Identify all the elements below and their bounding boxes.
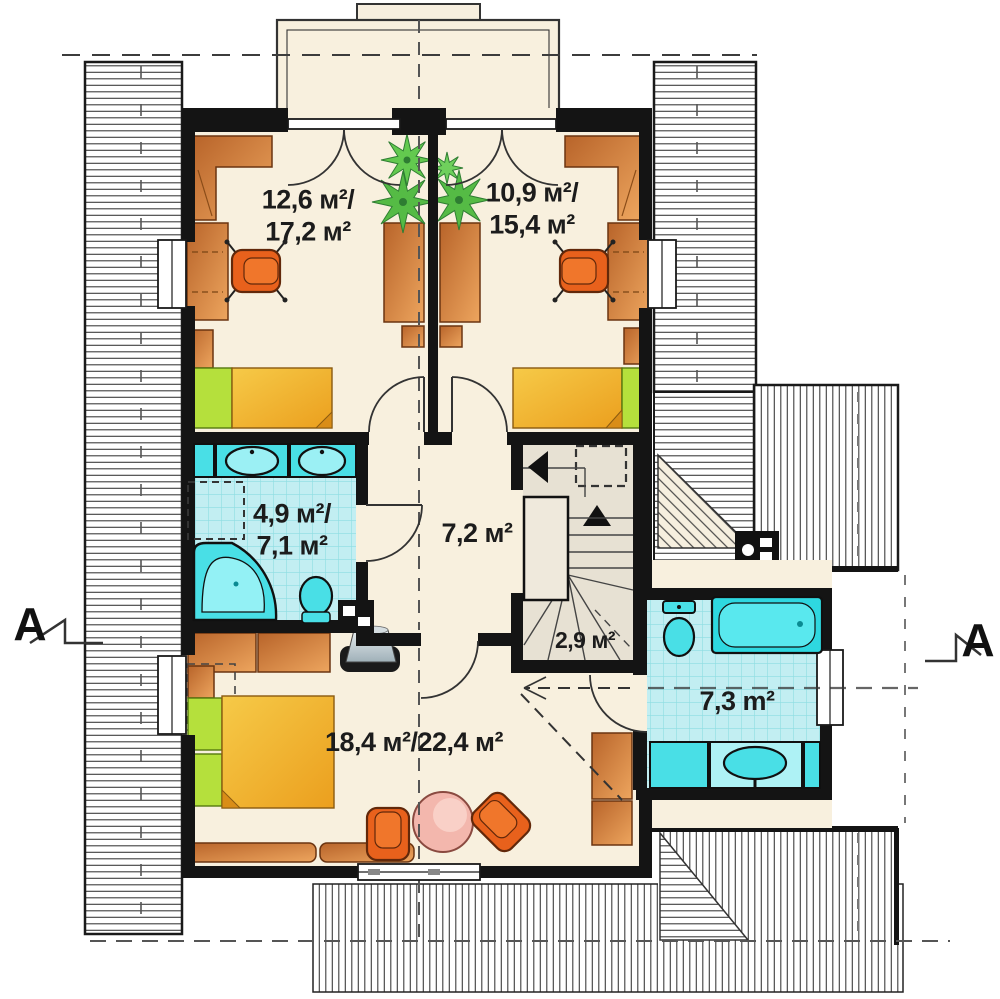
office-chair-icon	[553, 240, 616, 303]
room-area-label-bathroom-right: 7,3 m²	[699, 685, 774, 717]
window	[158, 240, 186, 308]
sofa-icon	[188, 843, 316, 862]
nightstand-icon	[188, 666, 214, 698]
wall-pier	[338, 600, 374, 633]
window	[158, 656, 186, 734]
room-area-label-hallway: 7,2 м²	[442, 517, 513, 549]
room-area-label-bedroom-top-left: 12,6 м²/ 17,2 м²	[262, 184, 355, 249]
roof-right	[654, 62, 756, 392]
table-icon	[413, 792, 473, 852]
bed-icon	[513, 368, 640, 428]
bed-icon	[190, 368, 332, 428]
desk-icon	[440, 223, 480, 322]
toilet-icon	[663, 601, 695, 656]
room-area-label-bathroom-left: 4,9 м²/ 7,1 м²	[253, 498, 331, 563]
stool-icon	[440, 326, 462, 347]
stool-icon	[402, 326, 424, 347]
room-area-label-staircase: 2,9 м²	[555, 627, 615, 655]
cabinet-icon	[592, 801, 632, 845]
office-chair-icon	[225, 240, 288, 303]
sink-icon	[226, 447, 278, 475]
armchair-icon	[367, 808, 409, 860]
toilet-icon	[300, 577, 332, 623]
room-area-label-bedroom-top-right: 10,9 м²/ 15,4 м²	[486, 177, 579, 242]
cabinet-icon	[258, 633, 330, 672]
room-area-label-bedroom-bottom: 18,4 м²/22,4 м²	[325, 726, 503, 758]
stair-railing	[524, 497, 568, 600]
floor-plan-page: 12,6 м²/ 17,2 м² 10,9 м²/ 15,4 м² 4,9 м²…	[0, 0, 1000, 999]
roof-bay	[652, 385, 898, 572]
floor-plan-drawing	[0, 0, 1000, 999]
section-label-left: A	[13, 597, 46, 651]
bathtub-icon	[712, 597, 822, 653]
roof-left	[85, 62, 182, 934]
roof-bottom-right	[650, 826, 899, 945]
sink-icon	[299, 447, 345, 475]
section-label-right: A	[961, 613, 994, 667]
window	[358, 864, 480, 880]
window	[648, 240, 676, 308]
